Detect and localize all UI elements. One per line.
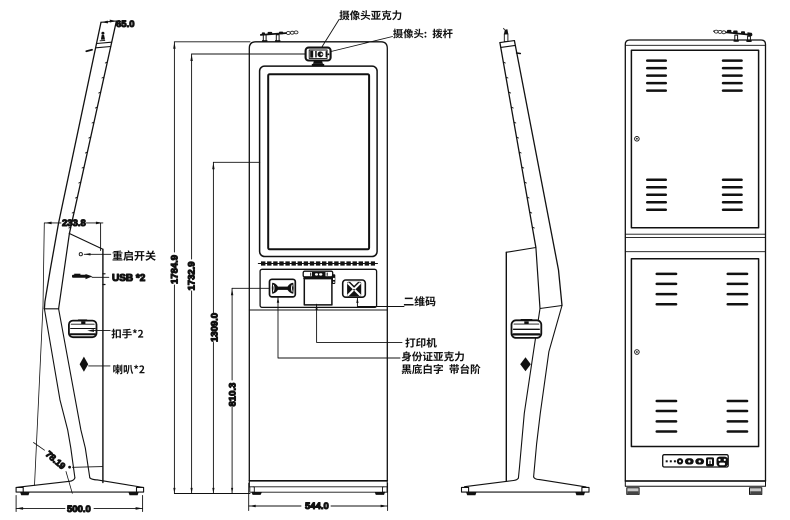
svg-text:USB *2: USB *2 bbox=[112, 273, 146, 284]
svg-text:1309.0: 1309.0 bbox=[209, 313, 220, 342]
svg-text:233.8: 233.8 bbox=[62, 218, 86, 229]
svg-text:500.0: 500.0 bbox=[67, 504, 91, 515]
svg-text:65.0: 65.0 bbox=[116, 19, 135, 30]
svg-text:544.0: 544.0 bbox=[305, 501, 329, 512]
svg-text:810.3: 810.3 bbox=[228, 383, 239, 407]
svg-text:1784.9: 1784.9 bbox=[170, 255, 181, 284]
svg-text:1732.9: 1732.9 bbox=[187, 261, 198, 290]
